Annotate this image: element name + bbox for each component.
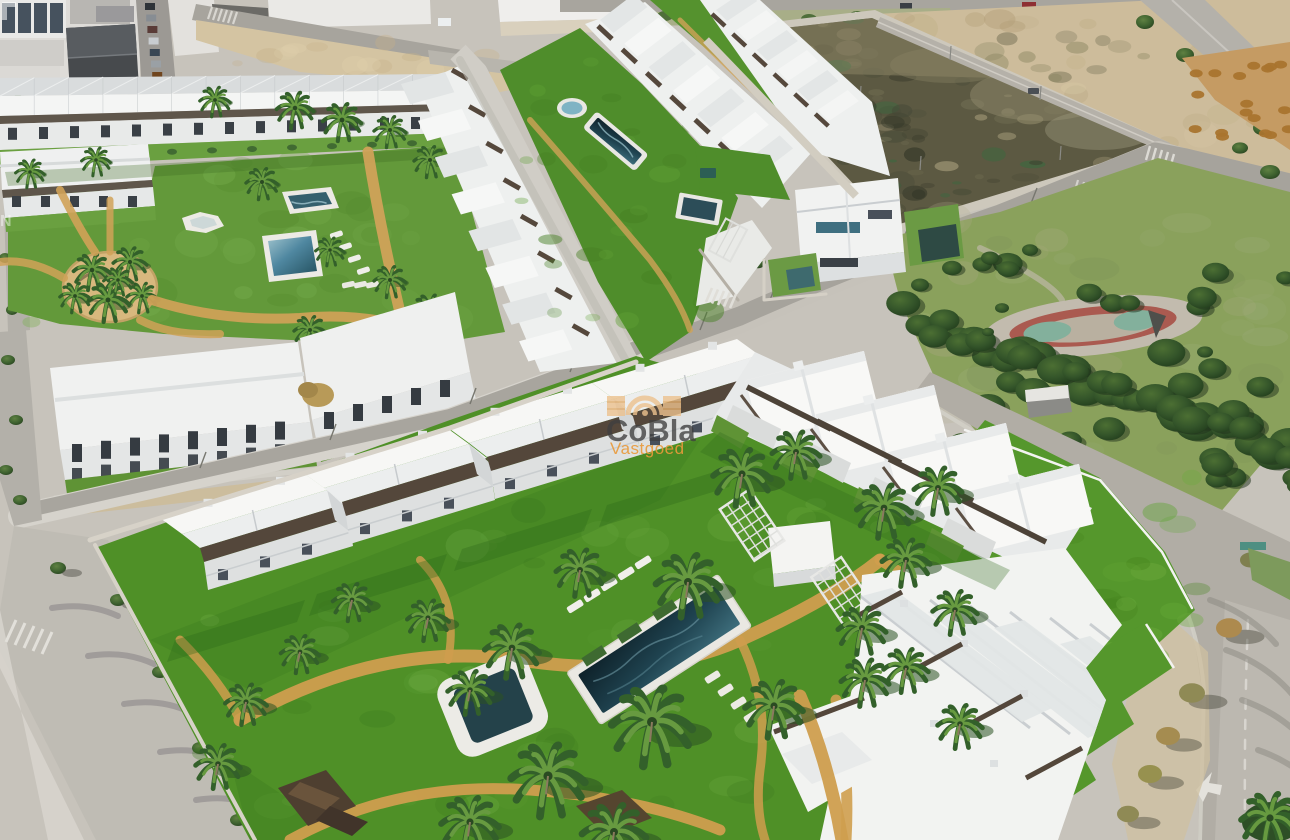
svg-text:N: N [0, 213, 12, 230]
svg-text:Vastgoed: Vastgoed [610, 439, 685, 458]
